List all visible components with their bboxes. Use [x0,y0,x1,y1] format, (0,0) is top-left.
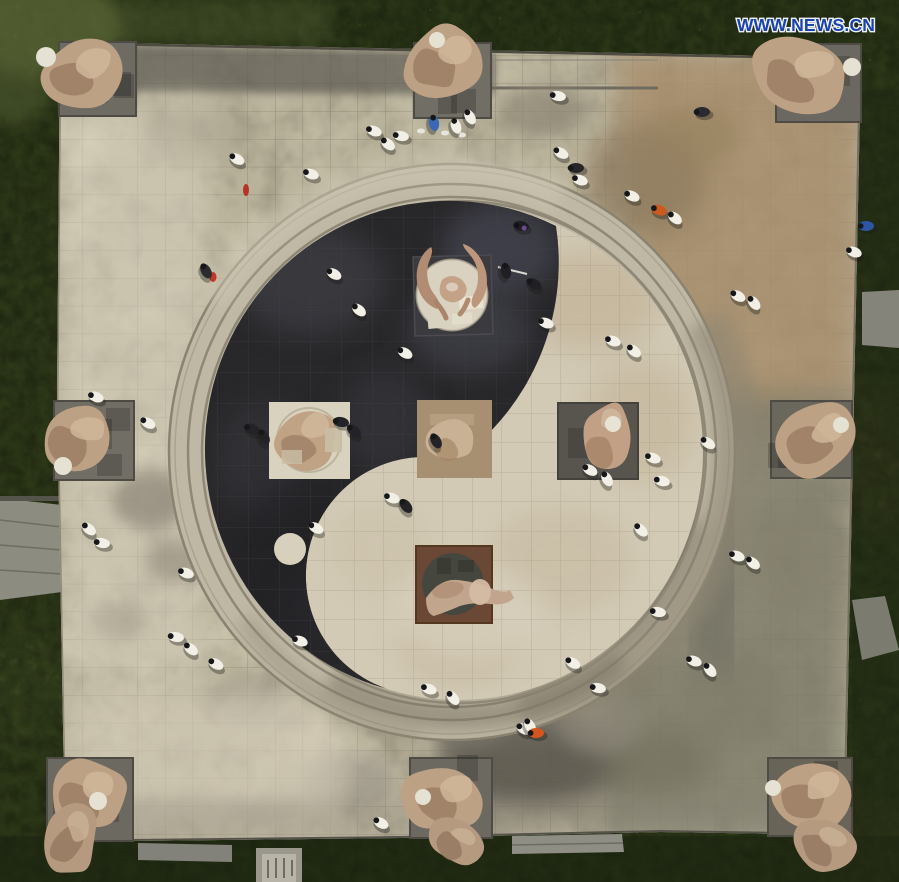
svg-text:WWW.NEWS.CN: WWW.NEWS.CN [737,15,875,35]
